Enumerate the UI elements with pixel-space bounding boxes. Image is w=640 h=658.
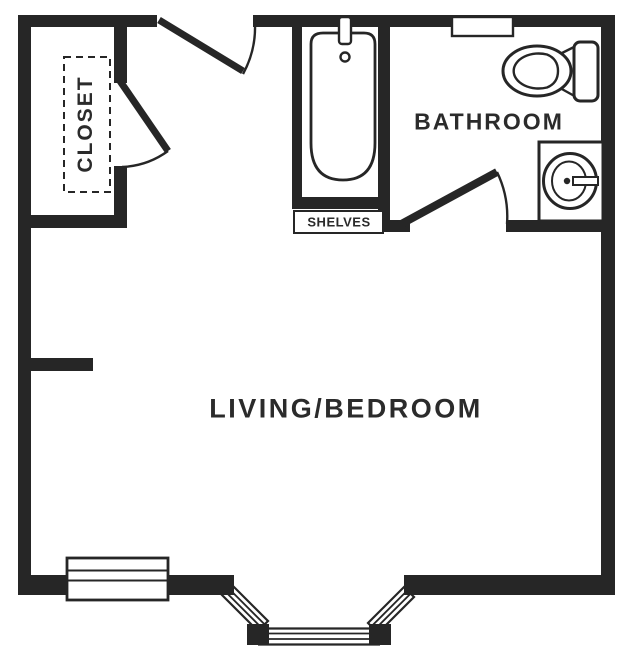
closet-door-panel: [120, 81, 168, 151]
bathtub: [311, 17, 375, 180]
entry-door: [159, 20, 255, 74]
floor-plan: LIVING/BEDROOM BATHROOM CLOSET SHELVES: [0, 0, 640, 658]
closet-label: CLOSET: [74, 75, 98, 172]
medicine-cabinet: [452, 17, 513, 36]
tub-drain: [341, 53, 350, 62]
entry-door-panel: [159, 20, 243, 71]
bathroom-door: [394, 172, 507, 228]
left-window: [67, 558, 168, 600]
shelves-label: SHELVES: [307, 215, 370, 230]
closet-wall-right-top: [114, 15, 127, 83]
tub-wall-bottom: [292, 197, 390, 209]
closet-door: [120, 81, 168, 167]
toilet: [503, 42, 598, 101]
wall-top-left: [18, 15, 157, 27]
sink-vanity: [539, 142, 603, 221]
sink-drain: [564, 178, 570, 184]
living-bedroom-label: LIVING/BEDROOM: [209, 394, 483, 425]
toilet-tank: [574, 42, 598, 101]
wall-bottom-right: [404, 575, 615, 595]
bathroom-door-panel: [394, 172, 497, 228]
wall-stub: [18, 358, 93, 371]
bathroom-wall-left: [292, 15, 302, 209]
wall-right: [601, 15, 615, 595]
bay-window: [222, 585, 414, 645]
bay-window-bottom: [258, 629, 380, 645]
tub-faucet: [339, 17, 351, 44]
bathroom-label: BATHROOM: [414, 109, 564, 136]
sink-faucet: [573, 177, 598, 185]
entry-door-swing-arc: [243, 24, 255, 74]
closet-door-swing-arc: [122, 151, 168, 167]
wall-top-right: [253, 15, 615, 27]
wall-left: [18, 15, 31, 595]
bathroom-door-swing-arc: [497, 172, 507, 224]
closet-wall-bottom: [18, 215, 127, 228]
bay-window-post-left: [247, 624, 269, 645]
bay-window-post-right: [369, 624, 391, 645]
toilet-bowl-inner: [514, 54, 558, 89]
